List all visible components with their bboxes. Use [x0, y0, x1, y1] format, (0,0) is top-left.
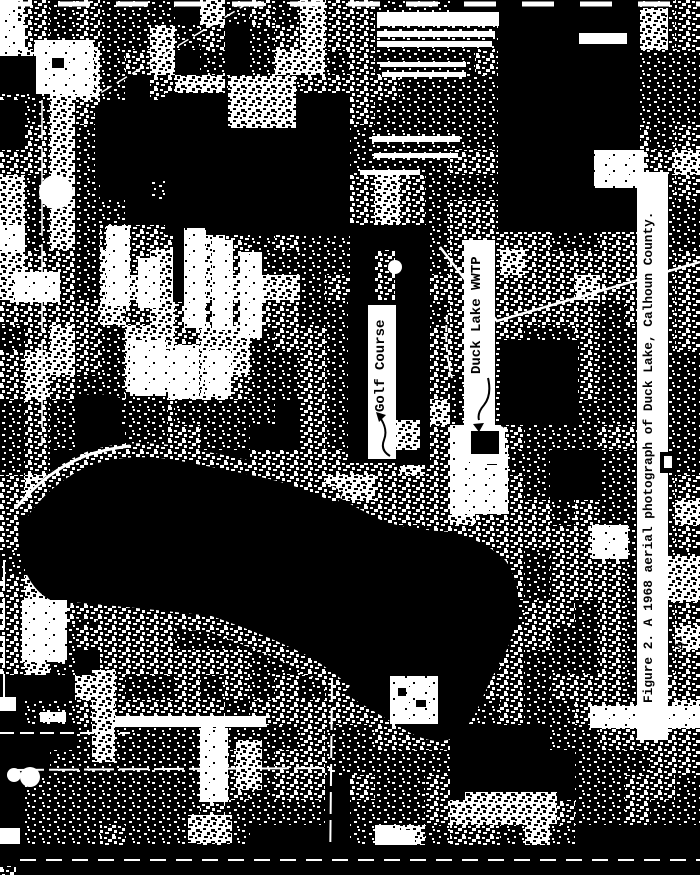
- svg-text:Figure 2. A 1968 aerial photo: Figure 2. A 1968 aerial photograph of Du…: [641, 212, 656, 703]
- svg-text:Duck Lake WWTP: Duck Lake WWTP: [469, 256, 485, 374]
- svg-text:4-: 4-: [673, 634, 688, 650]
- svg-text:Golf Course: Golf Course: [373, 320, 389, 412]
